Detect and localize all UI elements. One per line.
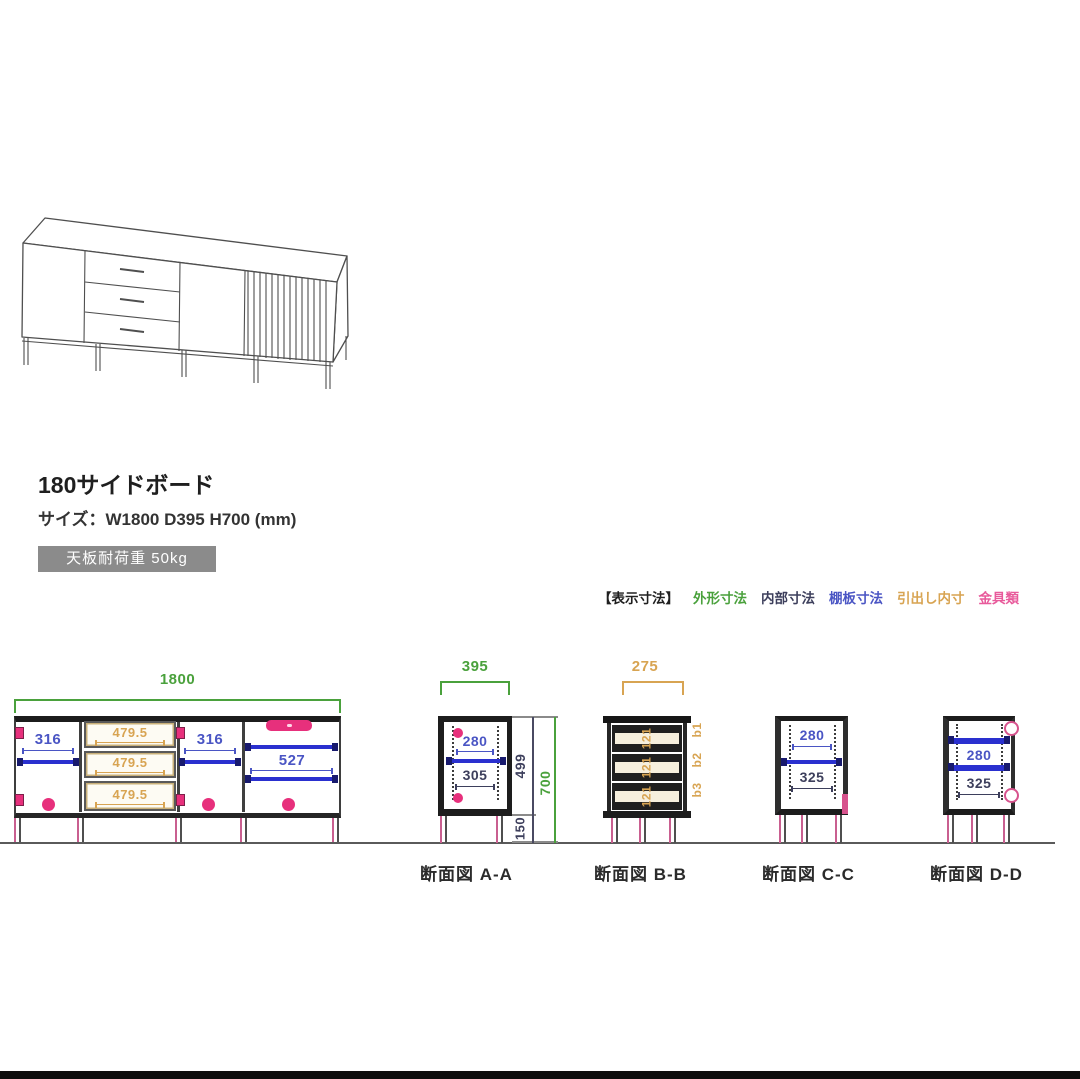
depth-bracket <box>440 681 510 683</box>
shelf-depth: 280 <box>790 728 834 742</box>
leg <box>14 818 21 842</box>
shelf-board <box>448 759 504 763</box>
shelf-board <box>783 760 840 764</box>
drawer-callout: b1 <box>691 717 703 743</box>
top-panel <box>603 716 691 723</box>
drawer-inner-height: 121 <box>641 726 654 752</box>
hardware-strip <box>842 794 848 814</box>
product-title: 180サイドボード <box>38 466 214 500</box>
section-label: 断面図 C-C <box>762 860 855 885</box>
shelf-board <box>950 765 1008 771</box>
shelf-board <box>247 777 336 781</box>
leg <box>332 818 339 842</box>
load-capacity-badge: 天板耐荷重 50kg <box>38 546 216 572</box>
dim-line <box>95 772 165 773</box>
section-label: 断面図 A-A <box>420 860 513 885</box>
front-width-bracket <box>14 699 341 701</box>
inner-depth: 325 <box>789 770 835 784</box>
legend-prefix: 【表示寸法】 <box>598 587 679 607</box>
drawer-inner-width: 479.5 <box>86 726 174 739</box>
dim-line <box>250 770 333 771</box>
drawer-callout: b3 <box>691 777 703 803</box>
drawer-side-3: 121 <box>612 783 682 810</box>
knob-icon <box>282 798 295 811</box>
leg <box>835 815 842 843</box>
section-label: 断面図 D-D <box>930 860 1023 885</box>
leg <box>669 818 676 843</box>
depth-dim: 395 <box>438 659 512 674</box>
inner-height: 499 <box>513 746 527 786</box>
tick <box>512 716 558 718</box>
hinge-icon <box>176 727 185 739</box>
drawer-side-1: 121 <box>612 725 682 752</box>
drawer-side-2: 121 <box>612 754 682 781</box>
section-label: 断面図 B-B <box>594 860 687 885</box>
dim-line <box>456 751 494 752</box>
dim-line <box>184 750 236 751</box>
hinge-hook-icon <box>1004 788 1019 803</box>
inner-depth: 325 <box>956 776 1002 790</box>
legend-inner-dim: 内部寸法 <box>761 587 815 607</box>
dimension-legend: 【表示寸法】 外形寸法 内部寸法 棚板寸法 引出し内寸 金具類 <box>598 587 1019 607</box>
door-handle <box>266 720 312 731</box>
image-bottom-border <box>0 1071 1080 1079</box>
leg <box>240 818 247 842</box>
legend-shelf-dim: 棚板寸法 <box>829 587 883 607</box>
cabinet-divider <box>242 722 245 812</box>
spec-sheet: 180サイドボード サイズ：W1800 D395 H700 (mm) 天板耐荷重… <box>0 0 1080 1079</box>
knob-icon <box>202 798 215 811</box>
drawer-front-1: 479.5 <box>84 721 176 748</box>
hinge-icon <box>176 794 185 806</box>
dim-line <box>455 786 495 787</box>
right-compartment-width: 527 <box>262 753 322 768</box>
product-size: サイズ：W1800 D395 H700 (mm) <box>38 505 296 530</box>
shelf-pin-holes <box>497 726 499 800</box>
section-box <box>438 716 512 816</box>
leg <box>611 818 618 843</box>
drawer-callout: b2 <box>691 747 703 773</box>
leg <box>175 818 182 842</box>
dim-line <box>95 742 165 743</box>
leg <box>801 815 808 843</box>
dim-line <box>554 717 556 843</box>
hinge-icon <box>453 793 463 803</box>
hinge-icon <box>15 727 24 739</box>
shelf-depth: 280 <box>455 734 495 748</box>
drawer-depth: 275 <box>610 659 680 674</box>
dim-line <box>792 746 832 747</box>
leg <box>440 816 447 843</box>
legend-hardware: 金具類 <box>979 587 1020 607</box>
dim-line <box>532 717 534 843</box>
leg <box>639 818 646 843</box>
leg <box>77 818 84 842</box>
shelf-board <box>950 738 1008 744</box>
center-compartment-width: 316 <box>182 732 238 747</box>
drawer-inner-width: 479.5 <box>86 756 174 769</box>
leg <box>1003 815 1010 843</box>
drawer-front-3: 479.5 <box>84 781 176 811</box>
shelf-depth: 280 <box>956 748 1002 762</box>
dim-line <box>22 750 74 751</box>
drawer-front-2: 479.5 <box>84 751 176 778</box>
drawer-inner-height: 121 <box>641 784 654 810</box>
drawer-inner-width: 479.5 <box>86 788 174 801</box>
cabinet-divider <box>79 722 82 812</box>
shelf-pin-holes <box>452 726 454 800</box>
inner-depth: 305 <box>453 768 497 782</box>
legend-outer-dim: 外形寸法 <box>693 587 747 607</box>
left-compartment-width: 316 <box>20 732 76 747</box>
shelf-board <box>181 760 239 764</box>
overall-height: 700 <box>538 763 552 803</box>
shelf-board <box>19 760 77 764</box>
depth-bracket <box>622 681 684 683</box>
leg <box>971 815 978 843</box>
dim-line <box>791 788 833 789</box>
bottom-panel <box>603 811 691 818</box>
knob-icon <box>42 798 55 811</box>
leg <box>779 815 786 843</box>
sideboard-perspective-drawing <box>8 205 368 405</box>
leg <box>947 815 954 843</box>
hinge-icon <box>15 794 24 806</box>
leg <box>496 816 503 843</box>
drawer-inner-height: 121 <box>641 755 654 781</box>
front-overall-width: 1800 <box>14 672 341 687</box>
shelf-board <box>247 745 336 749</box>
leg-height: 150 <box>514 814 527 844</box>
hinge-hook-icon <box>1004 721 1019 736</box>
legend-drawer-dim: 引出し内寸 <box>897 587 965 607</box>
dim-line <box>95 804 165 805</box>
dim-line <box>958 794 1000 795</box>
